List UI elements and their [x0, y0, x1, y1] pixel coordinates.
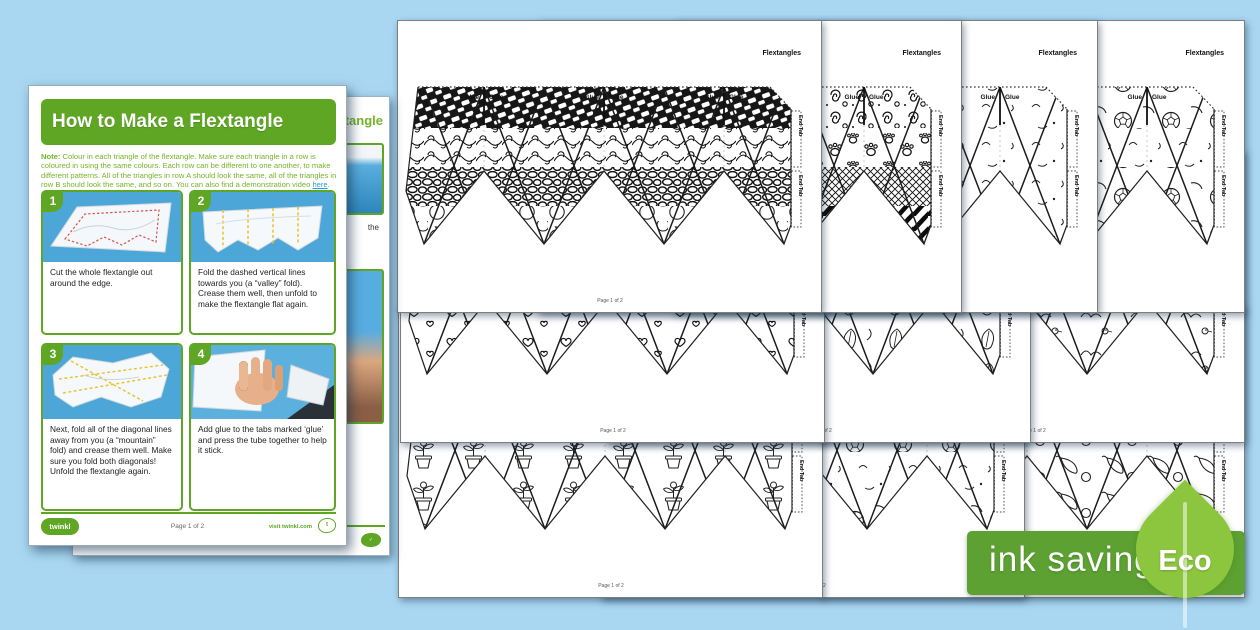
step-card-4: 4 Add glue to the tabs marked ‘glue’ and… — [189, 343, 336, 511]
note-paragraph: Note: Colour in each triangle of the fle… — [41, 152, 338, 190]
end-tabs: End Tab End Tab — [932, 111, 944, 227]
back-page-photo — [343, 269, 384, 424]
end-tab-label: End Tab — [1220, 115, 1226, 137]
glue-tab-label: Glue — [609, 94, 624, 101]
end-tab-label: End Tab — [797, 175, 803, 197]
back-page-photo — [343, 143, 384, 215]
step-card-2: 2 Fold the dashed vertical lines towards… — [189, 190, 336, 335]
end-tab-label: End Tab — [937, 175, 943, 197]
step-caption: Add glue to the tabs marked ‘glue’ and p… — [191, 419, 334, 456]
step-2-photo — [191, 192, 334, 262]
note-label: Note: — [41, 152, 60, 161]
end-tab-label: End Tab — [1073, 115, 1079, 137]
glue-tab-label: Glue — [729, 94, 744, 101]
end-tab-label: End Tab — [1073, 175, 1079, 197]
back-page-text-fragment: the — [368, 223, 379, 233]
back-page-title-fragment: tangle — [345, 113, 383, 128]
end-tab-label: End Tab — [937, 115, 943, 137]
template-page-doodle-patterns: Flextangles Glue Glue Glue — [397, 20, 822, 313]
glue-tab-label: Glue — [465, 94, 480, 101]
note-body: Colour in each triangle of the flextangl… — [41, 152, 336, 189]
template-title: Flextangles — [902, 50, 941, 57]
step-caption: Fold the dashed vertical lines towards y… — [191, 262, 334, 309]
footer-divider — [41, 512, 336, 514]
preview-stage: Flextangles Glue Glue Glue — [0, 0, 1260, 630]
end-tab-label: End Tab — [1220, 175, 1226, 197]
step-card-3: 3 Next, fold all of the diagonal lines a… — [41, 343, 183, 511]
end-tabs: End Tab End Tab — [1068, 111, 1080, 227]
step-caption: Next, fold all of the diagonal lines awa… — [43, 419, 181, 477]
visit-link[interactable]: visit twinkl.com — [269, 524, 312, 530]
glue-tab-label: Glue — [585, 94, 600, 101]
template-title: Flextangles — [1185, 50, 1224, 57]
step-card-1: 1 Cut the whole flextangle out around th… — [41, 190, 183, 335]
instructions-page: How to Make a Flextangle Note: Colour in… — [28, 85, 347, 546]
twinkl-badge-icon: ✓ — [361, 533, 381, 547]
glue-tab-label: Glue — [869, 94, 884, 101]
glue-tab-label: Glue — [1152, 94, 1167, 101]
eco-label: Eco — [1143, 545, 1227, 578]
glue-tab-label: Glue — [845, 94, 860, 101]
note-link[interactable]: here — [312, 180, 327, 189]
flextangle-strip: Flextangles Glue Glue Glue — [398, 21, 823, 314]
step-caption: Cut the whole flextangle out around the … — [43, 262, 181, 288]
page-number: Page 1 of 2 — [600, 428, 626, 434]
end-tab-label: End Tab — [1000, 460, 1006, 482]
glue-tab-label: Glue — [489, 94, 504, 101]
end-tab-label: End Tab — [798, 460, 804, 482]
end-tab-label: End Tab — [1220, 460, 1226, 482]
template-title: Flextangles — [762, 50, 801, 57]
step-1-photo — [43, 192, 181, 262]
page-number: Page 1 of 2 — [598, 583, 624, 589]
glue-tab-label: Glue — [981, 94, 996, 101]
end-tab-label: End Tab — [797, 115, 803, 137]
end-tabs: End Tab End Tab — [1215, 111, 1227, 227]
step-4-photo — [191, 345, 334, 419]
note-period: . — [328, 180, 330, 189]
page-number: Page 1 of 2 — [597, 298, 623, 304]
template-title: Flextangles — [1038, 50, 1077, 57]
page-title: How to Make a Flextangle — [41, 99, 336, 145]
step-3-photo — [43, 345, 181, 419]
twinkl-quality-badge-icon: t — [318, 518, 336, 533]
ink-saving-label: ink saving — [989, 540, 1155, 580]
glue-tab-label: Glue — [705, 94, 720, 101]
glue-tab-label: Glue — [1128, 94, 1143, 101]
end-tabs: End Tab End Tab — [792, 111, 804, 227]
glue-tab-label: Glue — [1005, 94, 1020, 101]
